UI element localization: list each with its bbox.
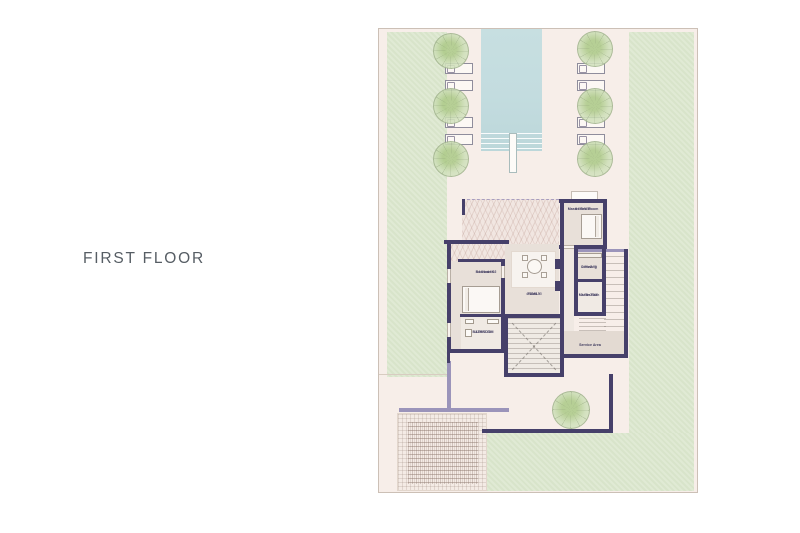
chair-icon [541,272,547,278]
lawn-bottom [483,433,694,491]
gate-dashed [447,353,450,363]
wall [458,259,505,262]
tree-icon [433,33,469,69]
site-plan: Master Bed Room 4.50x5.50 Bedroom 02 4.0… [378,28,698,493]
wall [602,249,606,316]
dining-table-icon [527,259,542,274]
bed-icon [462,286,500,313]
wall-light [447,361,451,411]
door-jamb [555,281,560,291]
wall [447,349,505,353]
pergola-grid [397,413,487,491]
wall [444,240,509,244]
window-gap [447,269,451,283]
lawn-left [387,32,447,377]
tree-icon [433,141,469,177]
wall [609,374,613,433]
wall [603,199,607,249]
page: FIRST FLOOR [0,0,800,533]
door-jamb [555,259,560,269]
wall [563,354,627,358]
tree-icon [433,88,469,124]
tree-icon [577,88,613,124]
tree-icon [552,391,590,429]
wardrobe-icon [577,253,602,258]
shower-icon [487,319,499,324]
wall [574,279,602,282]
chair-icon [522,272,528,278]
wall [560,199,564,377]
stair-upper-flight [579,314,606,331]
sink-icon [465,319,474,324]
lawn-right [629,32,694,491]
wall [559,199,607,203]
chair-icon [541,255,547,261]
bed-icon [581,214,602,239]
door-gap [564,245,574,249]
pool-lap-ledge [509,133,517,173]
wall [462,199,465,215]
wall [460,314,503,317]
tree-icon [577,31,613,67]
wall [504,314,564,318]
wall [504,314,508,377]
wall [624,249,628,358]
wall-light [399,408,509,412]
exterior-stair [604,249,624,342]
chair-icon [522,255,528,261]
toilet-icon [465,329,472,337]
staircase [508,318,560,373]
ground-line [379,374,447,375]
door-gap [501,266,505,278]
tree-icon [577,141,613,177]
wall [482,429,613,433]
master-bath-floor [576,281,604,314]
corridor-floor [563,249,574,331]
wall [504,373,564,377]
floor-title: FIRST FLOOR [83,250,205,268]
window-gap [447,323,451,337]
wall-light [574,249,626,252]
pergola-grid-inner [408,422,478,484]
